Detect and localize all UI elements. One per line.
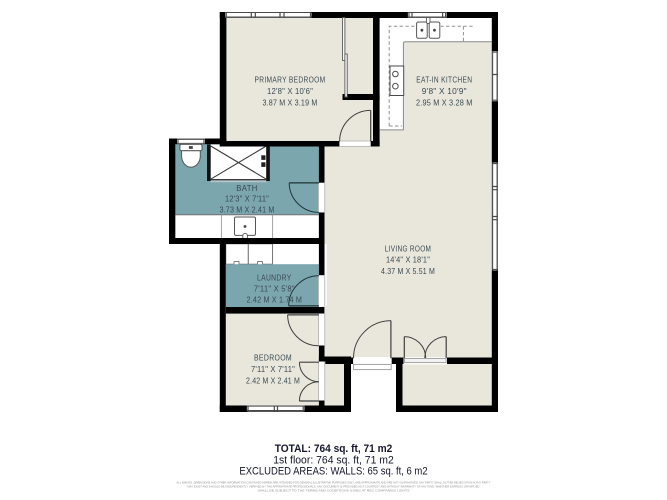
svg-text:2.42 M X 1.74 M: 2.42 M X 1.74 M — [247, 295, 303, 304]
svg-text:7'11" X 7'11": 7'11" X 7'11" — [251, 365, 295, 374]
svg-text:LAUNDRY: LAUNDRY — [257, 273, 292, 283]
svg-text:7'11" X 5'8": 7'11" X 5'8" — [254, 285, 295, 294]
svg-text:4.37 M X 5.51 M: 4.37 M X 5.51 M — [381, 267, 435, 276]
svg-text:3.73 M X 2.41 M: 3.73 M X 2.41 M — [220, 205, 275, 214]
svg-text:2.95 M X 3.28 M: 2.95 M X 3.28 M — [416, 98, 473, 107]
svg-text:EXCLUDED AREAS: WALLS: 65 sq.: EXCLUDED AREAS: WALLS: 65 sq. ft, 6 m2 — [239, 465, 427, 477]
svg-text:TOTAL: 764 sq. ft, 71 m2: TOTAL: 764 sq. ft, 71 m2 — [275, 443, 393, 455]
svg-text:12'8" X 10'6": 12'8" X 10'6" — [267, 87, 313, 96]
svg-text:9'8" X 10'9": 9'8" X 10'9" — [422, 87, 467, 96]
svg-text:SHALL BE SUBJECT TO THE TERMS: SHALL BE SUBJECT TO THE TERMS AND CONDIT… — [258, 489, 410, 493]
svg-text:BEDROOM: BEDROOM — [254, 353, 292, 363]
svg-text:BATH: BATH — [236, 183, 258, 193]
svg-text:3.87 M X 3.19 M: 3.87 M X 3.19 M — [263, 98, 318, 107]
svg-text:2.42 M X 2.41 M: 2.42 M X 2.41 M — [246, 376, 300, 385]
svg-text:PRIMARY BEDROOM: PRIMARY BEDROOM — [255, 74, 326, 84]
svg-text:14'4" X 18'1": 14'4" X 18'1" — [386, 255, 430, 264]
svg-text:12'3" X 7'11": 12'3" X 7'11" — [225, 195, 269, 204]
svg-text:EAT-IN KITCHEN: EAT-IN KITCHEN — [416, 74, 472, 84]
svg-text:LIVING ROOM: LIVING ROOM — [385, 244, 432, 254]
